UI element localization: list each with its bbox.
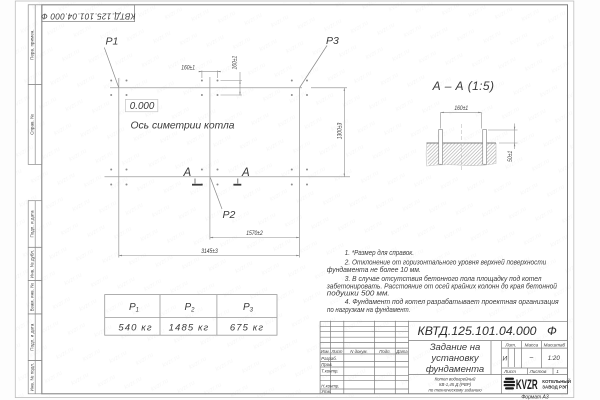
svg-text:КВ-1,45 Д (РВР): КВ-1,45 Д (РВР) xyxy=(439,382,472,387)
svg-text:–: – xyxy=(529,355,534,362)
svg-text:Масштаб: Масштаб xyxy=(544,342,566,347)
svg-text:Т.контр.: Т.контр. xyxy=(321,369,338,374)
svg-text:Подп. и дата: Подп. и дата xyxy=(29,210,34,238)
svg-text:1:20: 1:20 xyxy=(548,355,561,362)
svg-text:по техническому заданию: по техническому заданию xyxy=(428,387,482,392)
svg-text:50±1: 50±1 xyxy=(508,151,515,162)
svg-text:N докум.: N докум. xyxy=(350,349,367,354)
svg-text:Справ. №: Справ. № xyxy=(29,114,34,135)
svg-text:0.000: 0.000 xyxy=(130,101,155,112)
svg-text:А – А (1:5): А – А (1:5) xyxy=(432,79,495,93)
svg-text:Изм.: Изм. xyxy=(321,349,330,354)
svg-text:Лист: Лист xyxy=(503,369,516,374)
svg-text:Масса: Масса xyxy=(525,342,539,347)
svg-text:P2: P2 xyxy=(223,209,236,221)
svg-text:Утв.: Утв. xyxy=(321,389,331,394)
svg-text:Ось симетрии котла: Ось симетрии котла xyxy=(131,120,235,132)
svg-text:Дата: Дата xyxy=(395,349,408,354)
svg-text:ЗАВОД РЭП: ЗАВОД РЭП xyxy=(542,384,568,389)
svg-text:3. В случае отсутствия бетонно: 3. В случае отсутствия бетонного пола пл… xyxy=(345,275,542,283)
svg-text:160±1: 160±1 xyxy=(454,106,468,113)
svg-text:1300±3: 1300±3 xyxy=(337,122,344,139)
svg-text:Задание на: Задание на xyxy=(430,342,481,353)
svg-text:подушки 500 мм.: подушки 500 мм. xyxy=(327,289,390,297)
svg-text:1485 кг: 1485 кг xyxy=(169,322,210,333)
svg-text:Инв. № подл.: Инв. № подл. xyxy=(29,363,34,392)
svg-text:1. *Размер для справок.: 1. *Размер для справок. xyxy=(345,249,414,257)
svg-text:И: И xyxy=(502,356,507,363)
svg-text:1: 1 xyxy=(556,369,559,374)
svg-text:А: А xyxy=(183,167,192,179)
svg-text:540 кг: 540 кг xyxy=(118,322,152,333)
svg-text:КОТЕЛЬНЫЙ: КОТЕЛЬНЫЙ xyxy=(542,379,571,384)
svg-text:Инв. № дубл.: Инв. № дубл. xyxy=(29,250,34,278)
svg-text:P3: P3 xyxy=(326,35,339,47)
svg-text:Н.контр.: Н.контр. xyxy=(321,384,339,389)
svg-text:Подп. и дата: Подп. и дата xyxy=(29,323,34,351)
svg-text:Листов: Листов xyxy=(529,369,547,374)
svg-text:2. Отклонение от горизонтально: 2. Отклонение от горизонтального уровня … xyxy=(344,258,547,266)
svg-text:1570±2: 1570±2 xyxy=(246,231,263,238)
svg-text:Лист: Лист xyxy=(330,349,342,354)
svg-text:Подп.: Подп. xyxy=(379,349,390,354)
svg-text:КВТД.125.101.04.000 Ф: КВТД.125.101.04.000 Ф xyxy=(41,11,136,20)
svg-text:по нагрузкам на фундамент.: по нагрузкам на фундамент. xyxy=(327,305,410,314)
svg-text:Лит.: Лит. xyxy=(504,342,516,347)
svg-text:фундамента не более 10 мм.: фундамента не более 10 мм. xyxy=(327,266,421,274)
svg-text:160±1: 160±1 xyxy=(181,65,195,72)
svg-text:P1: P1 xyxy=(106,36,119,48)
svg-text:фундамента: фундамента xyxy=(426,364,484,375)
svg-text:Котел водогрейный: Котел водогрейный xyxy=(435,376,476,381)
svg-text:А: А xyxy=(241,167,250,179)
svg-text:160±1: 160±1 xyxy=(232,56,239,70)
svg-text:Взам. инв. №: Взам. инв. № xyxy=(29,283,34,312)
svg-text:KVZR: KVZR xyxy=(516,378,538,393)
svg-text:установку: установку xyxy=(430,353,480,364)
svg-text:Разраб.: Разраб. xyxy=(321,356,337,361)
svg-text:675 кг: 675 кг xyxy=(230,322,264,333)
svg-text:Перв. примен.: Перв. примен. xyxy=(29,29,34,60)
svg-text:Формат А3: Формат А3 xyxy=(521,394,549,400)
svg-text:КВТД.125.101.04.000: КВТД.125.101.04.000 xyxy=(418,324,537,338)
svg-text:Ф: Ф xyxy=(547,324,557,338)
svg-text:3145±3: 3145±3 xyxy=(201,249,218,256)
svg-text:4. Фундамент под котел разраба: 4. Фундамент под котел разрабатывает про… xyxy=(345,298,559,306)
svg-text:Пров.: Пров. xyxy=(321,362,332,367)
